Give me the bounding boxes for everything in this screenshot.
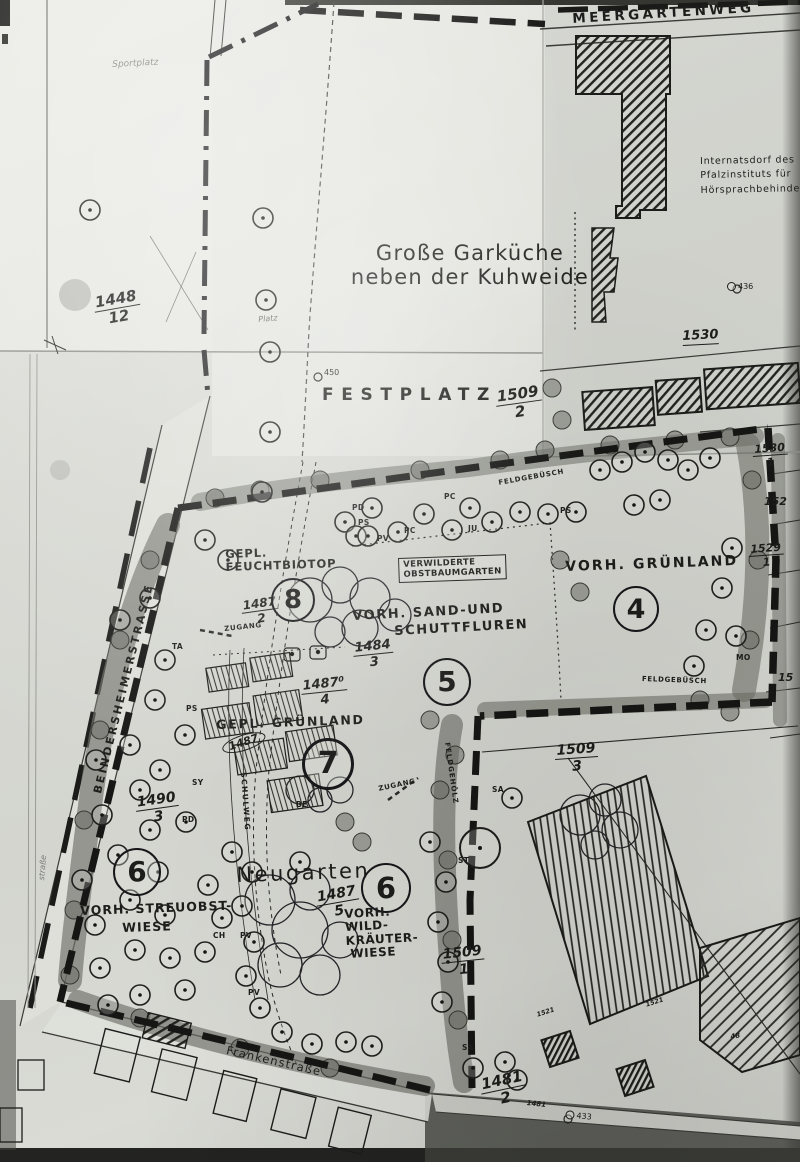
area-label-verwilderte: VERWILDERTE OBSTBAUMGARTEN <box>398 554 507 583</box>
marker-436: 436 <box>727 282 753 292</box>
species-ju-1: JU <box>468 525 478 533</box>
garden-beds <box>195 648 343 820</box>
species-pd-2: PD <box>182 816 194 824</box>
label-platz: Platz <box>258 314 278 325</box>
area-number-6-west: 6 <box>113 848 161 896</box>
parcel-1487b-4: 1487⁰4 <box>300 675 349 709</box>
striped-hall <box>528 776 708 1024</box>
species-pv-2: PV <box>240 932 252 940</box>
species-st-1: ST <box>458 857 469 865</box>
species-mo-1: MO <box>736 654 751 662</box>
area-number-4: 4 <box>613 586 659 632</box>
parcel-1484-3: 14843 <box>352 638 395 671</box>
scanned-site-plan: MEERGARTENWEG Internatsdorf des Pfalzins… <box>0 0 800 1162</box>
species-sa-2: SA <box>462 1044 474 1052</box>
parcel-48: 48 <box>730 1032 741 1041</box>
species-ps-2: PS <box>560 507 572 515</box>
parcel-1530: 1530 <box>682 328 719 345</box>
species-ps-3: PS <box>186 705 198 713</box>
area-label-wildkraeuter: VORH. WILD- KRÄUTER- WIESE <box>344 904 419 961</box>
parcel-1530-1: 15301 <box>752 442 788 469</box>
marker-450: 450 <box>324 369 339 378</box>
survey-circle-icon <box>727 282 736 291</box>
area-number-5: 5 <box>423 658 471 706</box>
institution-label: Internatsdorf des Pfalzinstituts für Hör… <box>700 153 800 198</box>
parcel-152x: 152 <box>764 496 787 508</box>
parcel-1509-2: 15092 <box>494 384 544 423</box>
species-pv-1: PV <box>377 535 389 543</box>
area-number-7: 7 <box>302 738 354 790</box>
area-label-feuchtbiotop: GEPL. FEUCHTBIOTOP <box>225 544 337 574</box>
parcel-15x: 15 <box>778 672 793 684</box>
institute-building <box>576 36 670 218</box>
species-pc-1: PC <box>404 527 416 535</box>
striped-hall-2 <box>700 918 800 1072</box>
species-be-1: BE <box>296 801 308 809</box>
species-ch-1: CH <box>213 932 226 940</box>
species-pv-3: PV <box>248 989 260 997</box>
species-pd-1: PD <box>352 504 364 512</box>
survey-circle-icon <box>565 1110 575 1120</box>
species-ta-1: TA <box>172 643 183 651</box>
parcel-1509-1: 15091 <box>440 944 486 979</box>
species-sa-1: SA <box>492 786 504 794</box>
parcel-1509-3: 15093 <box>554 741 599 775</box>
species-ps-1: PS <box>358 519 370 527</box>
area-number-8: 8 <box>271 578 315 622</box>
area-label-streuobst-2: WIESE <box>122 919 172 935</box>
buildings <box>0 36 800 1154</box>
species-sy-1: SY <box>192 779 204 787</box>
label-festplatz: FESTPLATZ <box>322 386 497 405</box>
parcel-1490-3: 14903 <box>134 790 181 827</box>
parcel-1529-1: 15291 <box>748 542 784 569</box>
species-pc-2: PC <box>444 493 456 501</box>
title-garkueche: Große Garküche neben der Kuhweide <box>340 242 600 289</box>
